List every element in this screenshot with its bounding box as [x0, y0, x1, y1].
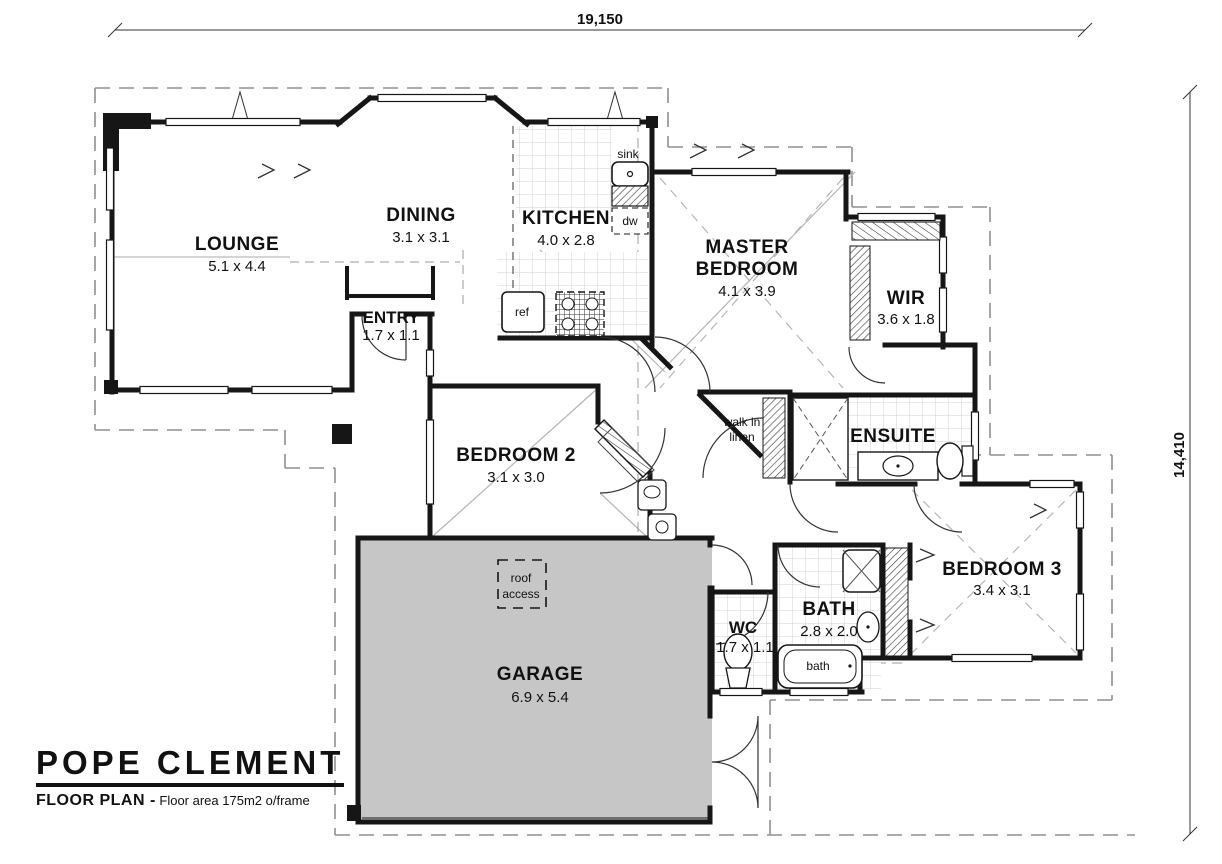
window-bath-south: [790, 689, 848, 696]
dim-overall-height: 14,410: [1171, 432, 1188, 478]
bedroom3-door-arc: [914, 484, 962, 532]
label-bath: BATH: [802, 599, 855, 620]
window-wc-south: [720, 689, 762, 696]
label-bath-size: 2.8 x 2.0: [800, 623, 858, 640]
window-wir-east-1: [940, 237, 947, 273]
stove: [556, 292, 604, 336]
roof-pitch-triangle-1: [232, 92, 248, 120]
chevron-robe-1: [916, 549, 934, 562]
door-leaves: [595, 420, 654, 484]
title-block: POPE CLEMENT FLOOR PLAN - Floor area 175…: [36, 746, 344, 810]
label-kitchen: KITCHEN: [522, 208, 610, 229]
label-linen-1: walk in: [723, 415, 761, 429]
ensuite-shower: [793, 398, 848, 480]
bedroom3-robe-rail: [885, 548, 908, 656]
bath-basin: [857, 612, 879, 642]
ensuite-vanity: [858, 452, 938, 480]
hall-basin: [638, 480, 676, 540]
label-roof-access-1: roof: [511, 571, 532, 585]
ensuite-toilet: [937, 443, 973, 479]
window-lounge-bottom-1: [140, 387, 228, 394]
window-bedroom2-west-1: [427, 350, 434, 376]
floor-plan-drawing: 19,150 14,410 LOUNGE 5.1 x 4.4 DINING 3.…: [0, 0, 1222, 864]
linen-shelves: [763, 398, 785, 478]
ensuite-door-arc: [790, 484, 838, 532]
wall-dining-closet: [347, 268, 433, 298]
label-bedroom3-size: 3.4 x 3.1: [973, 582, 1031, 599]
label-bedroom2-size: 3.1 x 3.0: [487, 469, 545, 486]
label-dining-size: 3.1 x 3.1: [392, 229, 450, 246]
plan-subtitle-note: Floor area 175m2 o/frame: [159, 793, 309, 808]
chevron-bedroom3: [1030, 504, 1046, 518]
label-wc: WC: [729, 618, 757, 637]
window-bedroom2-west-2: [427, 420, 434, 504]
label-entry-size: 1.7 x 1.1: [362, 327, 420, 344]
bedroom2-door-leaf: [595, 420, 652, 477]
window-lounge-left-1: [107, 148, 114, 210]
plan-subtitle: FLOOR PLAN -: [36, 792, 156, 809]
dining-roof-dash: [290, 250, 463, 310]
chevron-dining-1: [258, 164, 274, 178]
label-lounge-size: 5.1 x 4.4: [208, 258, 266, 275]
label-lounge: LOUNGE: [195, 234, 279, 255]
label-master-2: BEDROOM: [696, 259, 799, 280]
roof-pitch-triangle-2: [607, 92, 623, 120]
kitchen-tiles-upper: [516, 126, 612, 214]
label-bathtub: bath: [806, 659, 829, 673]
label-garage: GARAGE: [497, 664, 583, 685]
plan-title: POPE CLEMENT: [36, 746, 344, 787]
window-lounge-bottom-2: [252, 387, 332, 394]
window-master-top: [692, 169, 776, 176]
label-kitchen-size: 4.0 x 2.8: [537, 232, 595, 249]
sink-drainer-hatch: [612, 186, 648, 206]
chevron-dining-2: [294, 164, 310, 178]
chevron-robe-2: [916, 619, 934, 632]
label-ensuite: ENSUITE: [850, 426, 936, 447]
window-bedroom3-east-1: [1077, 492, 1084, 528]
chevron-master-1: [690, 144, 706, 158]
window-kitchen-top: [548, 119, 640, 126]
label-sink: sink: [617, 147, 639, 161]
chevron-master-2: [738, 144, 754, 158]
window-bedroom3-east-2: [1077, 594, 1084, 650]
window-lounge-top: [166, 119, 300, 126]
plan-subtitle-line: FLOOR PLAN - Floor area 175m2 o/frame: [36, 792, 344, 810]
roof-valley-master: [645, 172, 855, 388]
window-wir-east-2: [940, 288, 947, 332]
dim-overall-width: 19,150: [577, 11, 623, 28]
label-wir: WIR: [887, 288, 925, 309]
master-door-arcs: [600, 337, 710, 392]
window-wir-top: [858, 214, 935, 221]
label-master-1: MASTER: [705, 237, 788, 258]
label-ref: ref: [515, 305, 530, 319]
label-wc-size: 1.7 x 1.1: [716, 639, 774, 656]
window-bay-top: [378, 95, 486, 102]
label-dining: DINING: [386, 205, 456, 226]
window-bedroom3-south: [952, 655, 1032, 662]
bath-shower: [843, 550, 880, 592]
label-dw: dw: [622, 214, 638, 228]
garage-exterior-doors: [712, 716, 758, 808]
wir-door-arc: [849, 347, 885, 383]
label-garage-size: 6.9 x 5.4: [511, 689, 569, 706]
floor-plan-page: 19,150 14,410 LOUNGE 5.1 x 4.4 DINING 3.…: [0, 0, 1222, 864]
label-bedroom2: BEDROOM 2: [456, 445, 576, 466]
label-linen-2: linen: [729, 430, 754, 444]
eave-line-left: [95, 88, 335, 835]
window-lounge-left-2: [107, 240, 114, 330]
garage-hall-door-arc: [712, 545, 752, 585]
window-bedroom3-top: [1030, 481, 1074, 488]
label-entry: ENTRY: [363, 308, 421, 327]
label-wir-size: 3.6 x 1.8: [877, 311, 935, 328]
label-bedroom3: BEDROOM 3: [942, 559, 1062, 580]
label-master-size: 4.1 x 3.9: [718, 283, 776, 300]
label-roof-access-2: access: [502, 587, 539, 601]
